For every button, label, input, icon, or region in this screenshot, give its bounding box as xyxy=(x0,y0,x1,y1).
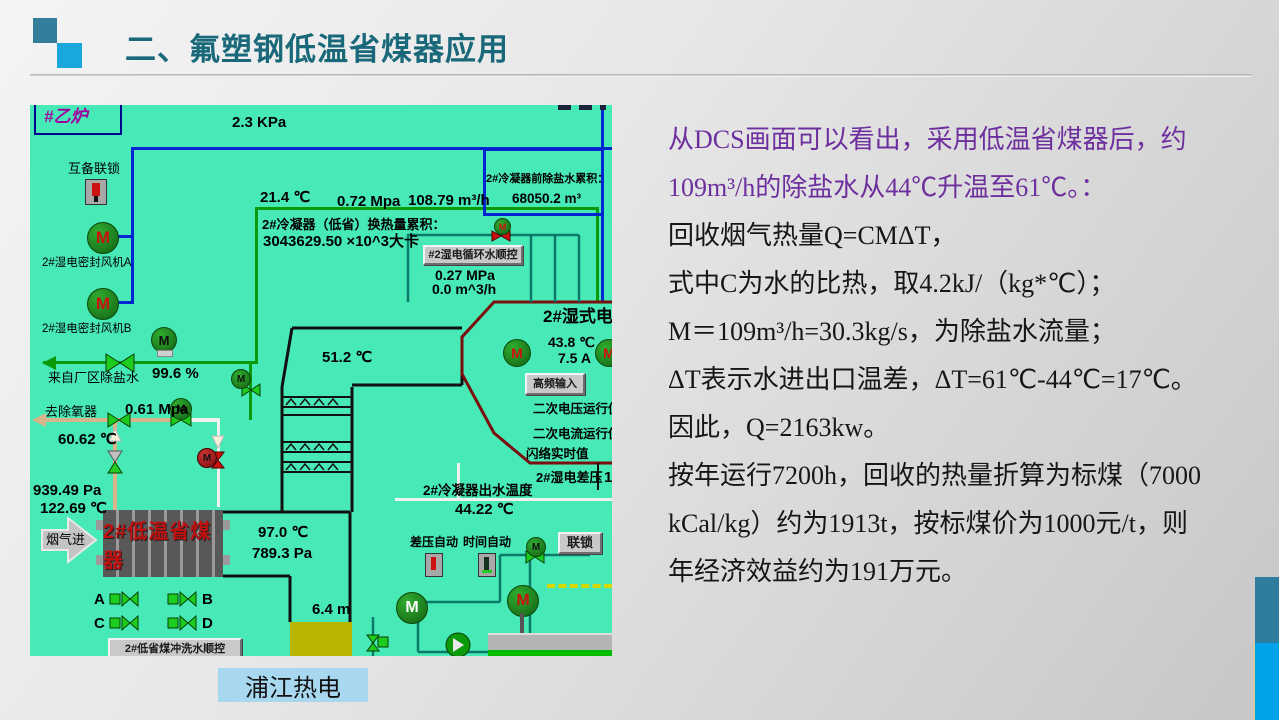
fan-a-motor-icon[interactable]: M xyxy=(87,222,119,254)
motor-letter: M xyxy=(511,345,523,361)
icon-red-bar xyxy=(431,557,436,570)
valve-b-icon[interactable] xyxy=(168,592,196,606)
reading-water-flow: 108.79 m³/h xyxy=(408,193,490,210)
reading-inlet-temp: 21.4 ℃ xyxy=(260,190,310,207)
economizer-stub xyxy=(223,520,230,530)
fan-a-label: 2#湿电密封风机A xyxy=(42,257,131,270)
body-line: 按年运行7200h，回收的热量折算为标煤（7000 xyxy=(668,452,1243,500)
flue-gas-in-label: 烟气进 xyxy=(46,533,85,547)
body-line: ΔT表示水进出口温差，ΔT=61℃-44℃=17℃。 xyxy=(668,356,1243,404)
clipped-text-fragment xyxy=(558,105,606,110)
caption-label: 浦江热电 xyxy=(218,668,368,702)
reading-valve-open: 99.6 % xyxy=(152,366,199,383)
sec-current-label: 二次电流运行值 xyxy=(533,428,612,442)
accumulator-label: 2#冷凝器前除盐水累积： xyxy=(486,173,608,185)
from-plant-label: 来自厂区除盐水 xyxy=(48,371,139,385)
heat-accum-label: 2#冷凝器（低省）换热量累积： xyxy=(262,218,445,232)
economizer-block: 2#低温省煤器 xyxy=(103,510,223,577)
slide-title: 二、氟塑钢低温省煤器应用 xyxy=(125,24,509,69)
body-line: 因此，Q=2163kw。 xyxy=(668,404,1243,452)
valve-c-icon[interactable] xyxy=(110,616,138,630)
motor-letter: M xyxy=(96,228,110,248)
icon-dark-bar xyxy=(484,557,489,570)
economizer-stub xyxy=(96,520,103,530)
dp-auto-label: 差压自动 xyxy=(410,536,458,549)
valve-bottom-drain[interactable] xyxy=(367,635,388,651)
circ-water-seq-button[interactable]: #2湿电循环水顺控 xyxy=(423,245,523,265)
fan-b-label: 2#湿电密封风机B xyxy=(42,323,131,336)
water-inlet-arrow xyxy=(42,356,56,370)
reading-circ-flow: 0.0 m^3/h xyxy=(432,282,496,297)
deaerator-arrow xyxy=(32,413,46,427)
reading-deaerator-temp: 60.62 ℃ xyxy=(58,432,117,449)
circ-valve-motor-icon[interactable]: M xyxy=(494,218,511,235)
reading-mid-temp: 51.2 ℃ xyxy=(322,350,372,367)
body-line: 年经济效益约为191万元。 xyxy=(668,548,1243,596)
reading-deaerator-pressure: 0.61 Mpa xyxy=(125,402,188,419)
economizer-flush-seq-button[interactable]: 2#低省煤冲洗水顺控 xyxy=(108,638,242,656)
accumulator-value: 68050.2 m³ xyxy=(512,192,581,207)
interlock-valve-motor-icon[interactable]: M xyxy=(526,537,546,557)
economizer-stub xyxy=(96,555,103,565)
reading-flue-out-temp: 97.0 ℃ xyxy=(258,525,308,542)
pump-icon[interactable] xyxy=(446,633,470,656)
motor-letter: M xyxy=(159,333,170,348)
icon-green-bar xyxy=(482,570,492,573)
dp-auto-icon[interactable] xyxy=(425,553,443,577)
motor-letter: M xyxy=(237,374,245,385)
motor-stand xyxy=(157,350,173,357)
drain-valve-motor-icon[interactable]: M xyxy=(197,448,217,468)
motor-letter: M xyxy=(499,222,507,232)
reading-flue-pressure-top: 2.3 KPa xyxy=(232,115,286,132)
esp-motor-1-icon[interactable]: M xyxy=(503,339,531,367)
icon-black-bar xyxy=(94,196,98,202)
reading-esp-current: 7.5 A xyxy=(558,351,591,366)
motor-pole xyxy=(520,613,524,633)
time-auto-label: 时间自动 xyxy=(463,536,511,549)
motor-letter: M xyxy=(516,592,529,610)
yellow-structure xyxy=(290,622,352,656)
interlock-button[interactable]: 联锁 xyxy=(558,532,602,554)
duct-hatch-lines xyxy=(282,397,352,472)
motor-letter: M xyxy=(532,542,540,553)
fan-b-motor-icon[interactable]: M xyxy=(87,288,119,320)
motor-letter: M xyxy=(96,294,110,314)
valve-a-icon[interactable] xyxy=(110,592,138,606)
reading-duct-height: 6.4 m xyxy=(312,602,350,619)
bottom-left-motor-icon[interactable]: M xyxy=(396,592,428,624)
sec-voltage-label: 二次电压运行值 xyxy=(533,403,612,417)
body-line: 回收烟气热量Q=CMΔT， xyxy=(668,212,1243,260)
reading-esp-temp: 43.8 ℃ xyxy=(548,335,595,350)
dcs-screenshot: #乙炉 M M M M M M M M M M M M 2#低温省煤器 #2湿电… xyxy=(30,105,612,656)
yellow-dashed-line xyxy=(547,584,612,588)
edge-deco-teal xyxy=(1255,577,1279,643)
unit-label: #乙炉 xyxy=(44,105,87,127)
valve-vertical-two-tone[interactable] xyxy=(108,451,122,473)
reading-flue-in-pa: 939.49 Pa xyxy=(33,483,101,500)
edge-deco-blue xyxy=(1253,643,1279,720)
body-line: kCal/kg）约为1913t，按标煤价为1000元/t，则 xyxy=(668,500,1243,548)
header-square-teal xyxy=(33,18,57,43)
time-auto-icon[interactable] xyxy=(478,553,496,577)
valve-c-label: C xyxy=(94,616,105,633)
outlet-temp-label: 2#冷凝器出水温度 xyxy=(423,484,533,499)
body-line: 109m³/h的除盐水从44℃升温至61℃。： xyxy=(668,164,1243,212)
reading-flue-out-pa: 789.3 Pa xyxy=(252,546,312,563)
green-strip xyxy=(488,650,612,656)
branch-valve-motor-icon[interactable]: M xyxy=(231,369,251,389)
valve-d-label: D xyxy=(202,616,213,633)
motor-letter: M xyxy=(203,453,211,464)
reading-flue-in-temp: 122.69 ℃ xyxy=(40,501,107,518)
header-divider xyxy=(30,74,1252,77)
outlet-temp-value: 44.22 ℃ xyxy=(455,502,514,519)
valve-a-label: A xyxy=(94,592,105,609)
body-line: 式中C为水的比热，取4.2kJ/（kg*℃）； xyxy=(668,260,1243,308)
to-deaerator-label: 去除氧器 xyxy=(45,405,97,419)
esp-dp-label: 2#湿电差压 xyxy=(536,471,602,485)
presentation-slide: 二、氟塑钢低温省煤器应用 xyxy=(0,0,1279,720)
esp-title: 2#湿式电除 xyxy=(543,308,612,327)
motor-letter: M xyxy=(405,599,418,617)
esp-dp-value: 1 xyxy=(604,470,612,487)
down-arrow-icon xyxy=(212,436,224,448)
body-line: 从DCS画面可以看出，采用低温省煤器后，约 xyxy=(668,116,1243,164)
economizer-stub xyxy=(223,555,230,565)
reading-water-pressure: 0.72 Mpa xyxy=(337,194,400,211)
interlock-status-icon[interactable] xyxy=(85,179,107,205)
heat-accum-value: 3043629.50 ×10^3大卡 xyxy=(263,234,419,251)
valve-b-label: B xyxy=(202,592,213,609)
body-line: M＝109m³/h=30.3kg/s，为除盐水流量； xyxy=(668,308,1243,356)
flash-value-label: 闪络实时值 xyxy=(526,448,589,462)
mutual-interlock-label: 互备联锁 xyxy=(68,162,120,176)
duct-chevrons xyxy=(286,399,338,470)
hf-input-button[interactable]: 高频输入 xyxy=(525,373,585,395)
header-square-blue xyxy=(57,43,82,68)
motor-letter: M xyxy=(603,345,612,361)
body-text: 从DCS画面可以看出，采用低温省煤器后，约 109m³/h的除盐水从44℃升温至… xyxy=(668,116,1243,596)
valve-d-icon[interactable] xyxy=(168,616,196,630)
economizer-label: 2#低温省煤器 xyxy=(103,515,223,573)
icon-red-bar xyxy=(92,183,100,196)
